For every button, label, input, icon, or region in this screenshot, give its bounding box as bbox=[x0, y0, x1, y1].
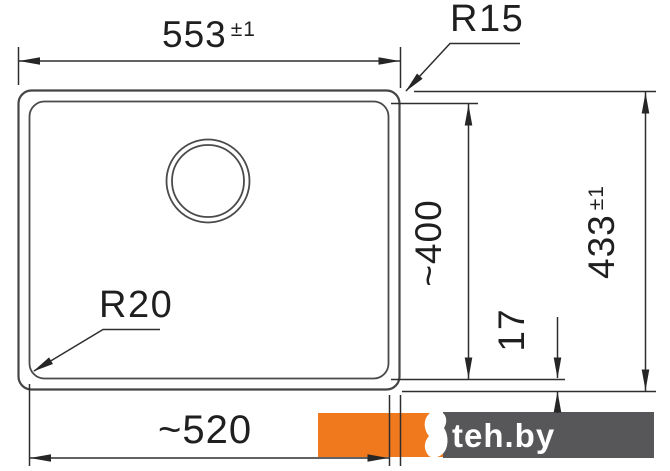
radius-label: R15 bbox=[450, 0, 524, 40]
watermark: teh.by bbox=[318, 411, 654, 458]
dimension-label: 17 bbox=[491, 308, 532, 351]
dimension-bowl-depth: ~400 bbox=[391, 104, 565, 380]
arrowhead-down bbox=[465, 358, 473, 379]
arrowhead-down bbox=[554, 358, 562, 379]
drain-hole-outer-circle bbox=[167, 140, 250, 223]
sink-outline bbox=[19, 91, 400, 390]
leader-line bbox=[406, 44, 520, 92]
leader-line bbox=[34, 330, 160, 372]
radius-callout-r20: R20 bbox=[31, 284, 173, 375]
dimension-label: 553±1 bbox=[162, 14, 256, 55]
dimension-label: 433±1 bbox=[581, 185, 622, 279]
arrowhead-up bbox=[465, 105, 473, 126]
technical-drawing-canvas: teh.by 553±1 R15 bbox=[0, 0, 670, 471]
drain-hole-inner-circle bbox=[172, 145, 244, 217]
arrowhead-up bbox=[554, 392, 562, 413]
arrowhead-right bbox=[379, 57, 400, 65]
watermark-orange-block bbox=[318, 413, 443, 457]
sink-inner-rect bbox=[30, 102, 389, 379]
arrowhead-left bbox=[19, 57, 40, 65]
watermark-logo-icon bbox=[425, 411, 448, 457]
dimension-label: ~520 bbox=[158, 408, 252, 452]
arrowhead-up bbox=[642, 93, 650, 114]
arrowhead bbox=[31, 357, 53, 374]
watermark-label: teh.by bbox=[452, 417, 555, 454]
radius-label: R20 bbox=[99, 284, 173, 326]
sink-dimension-diagram: teh.by 553±1 R15 bbox=[0, 0, 670, 471]
arrowhead-left bbox=[30, 454, 51, 462]
dimension-label: ~400 bbox=[408, 199, 449, 286]
radius-callout-r15: R15 bbox=[403, 0, 524, 94]
dimension-rim-offset: 17 bbox=[491, 308, 561, 413]
dimension-top-width: 553±1 bbox=[19, 14, 401, 88]
sink-outer-rect bbox=[19, 91, 400, 390]
arrowhead-down bbox=[642, 370, 650, 391]
